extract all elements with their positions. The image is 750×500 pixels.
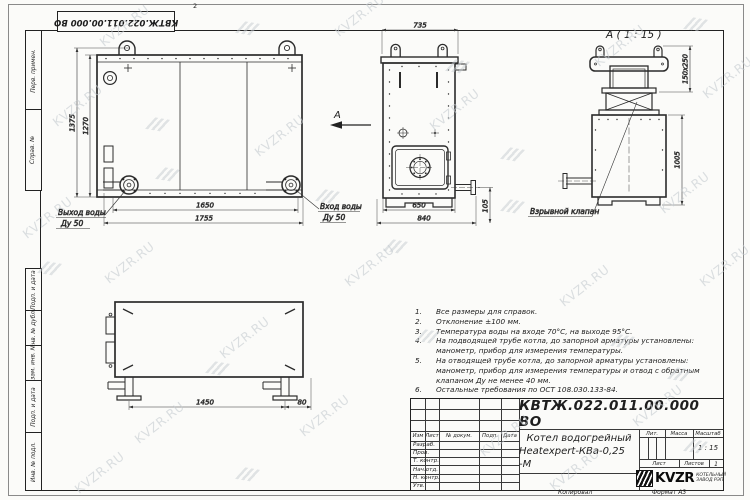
dim-105: 105	[482, 199, 490, 213]
lifting-lug	[438, 44, 447, 57]
detail-a-title: А ( 1 : 15 )	[605, 29, 662, 41]
lifting-lug	[596, 46, 604, 57]
side-view	[97, 41, 302, 197]
title-block: Изм Лист № докум. Подп. Дата Разраб. Про…	[410, 398, 724, 491]
arrow-a-label: А	[333, 110, 341, 121]
detail-a-view: А ( 1 : 15 )	[558, 29, 668, 205]
tb-header-podp: Подп.	[479, 433, 501, 439]
tb-header-data: Дата	[501, 433, 519, 439]
bottom-view	[106, 302, 303, 400]
tb-row-nkontr: Н. контр.	[413, 475, 440, 481]
dim-650: 650	[412, 202, 426, 210]
top-pipe-stub	[455, 64, 466, 70]
note-line: манометр, прибор для измерения температу…	[436, 366, 720, 376]
dim-1450: 1450	[196, 399, 214, 407]
base-skid	[598, 197, 660, 205]
dim-1005: 1005	[674, 151, 682, 168]
note-line: Все размеры для справок.	[436, 307, 720, 317]
inlet-label-line2: Ду 50	[322, 213, 345, 222]
tb-row-utv: Утв.	[413, 483, 425, 489]
dim-1270: 1270	[82, 117, 90, 135]
company-logo: KVZR КОТЕЛЬНЫЙ ЗАВОД РЭП	[640, 467, 722, 489]
tb-scale-label: Масштаб	[693, 431, 723, 437]
side-bracket	[104, 146, 113, 162]
dim-80: 80	[298, 399, 307, 407]
corner-marks	[124, 64, 296, 72]
lifting-lug	[654, 46, 662, 57]
tb-sheets-label: Листов	[679, 461, 709, 467]
note-line: манометр, прибор для измерения температу…	[436, 346, 720, 356]
front-view	[381, 44, 480, 207]
sight-glass	[397, 127, 439, 139]
dim-1375: 1375	[69, 114, 77, 132]
dim-1755: 1755	[195, 215, 213, 223]
rivet-dots	[389, 66, 449, 195]
left-leg-pipe	[108, 377, 141, 400]
company-name: КОТЕЛЬНЫЙ ЗАВОД РЭП	[696, 473, 726, 483]
corner-ticks	[123, 309, 295, 370]
side-bracket	[106, 317, 115, 334]
side-bracket	[106, 342, 115, 363]
footer-format: Формат А3	[652, 489, 686, 496]
side-bracket	[104, 168, 113, 188]
dim-840: 840	[417, 215, 431, 223]
bottom-view-dimensions: 1450 80	[129, 378, 311, 410]
front-view-dimensions: 735 650 840 105	[377, 22, 493, 227]
note-line: Остальные требования по ОСТ 108.030.133-…	[436, 385, 720, 395]
tb-sheet-label: Лист	[639, 461, 679, 467]
kvzr-logo-icon	[636, 470, 653, 487]
tb-row-razrab: Разраб.	[413, 442, 435, 448]
note-line: Отклонение ±100 мм.	[436, 317, 720, 327]
rivet-dots	[105, 58, 288, 194]
left-pipe	[558, 174, 597, 189]
kvzr-logo-word: KVZR	[655, 470, 694, 486]
lifting-lug	[279, 41, 295, 55]
tb-lit-label: Лит.	[639, 431, 665, 437]
view-direction-arrow: А	[330, 110, 371, 129]
tb-product-name: Котел водогрейный Heatexpert-КВа-0,25 -М	[519, 431, 639, 471]
hinge-boss	[104, 72, 117, 85]
product-name-line1: Котел водогрейный	[527, 432, 632, 445]
note-line: Температура воды на входе 70°С, на выход…	[436, 327, 720, 337]
tb-mass-label: Масса	[665, 431, 693, 437]
note-line: На подводящей трубе котла, до запорной а…	[436, 336, 720, 346]
dim-735: 735	[413, 22, 427, 30]
dim-150x250: 150x250	[682, 54, 690, 84]
explosion-valve	[599, 66, 659, 115]
product-name-line2: Heatexpert-КВа-0,25 -М	[519, 445, 639, 471]
technical-notes: 1.Все размеры для справок. 2.Отклонение …	[415, 307, 720, 395]
note-line: клапаном Ду не менее 40 мм.	[436, 376, 720, 386]
tb-scale-value: 1 : 15	[693, 439, 723, 457]
outlet-flange	[120, 176, 138, 194]
tb-row-tkontr: Т. контр.	[413, 458, 439, 464]
tb-doc-number: КВТЖ.022.011.00.000 ВО	[519, 401, 723, 427]
footer-copied-by: Копировал	[558, 489, 592, 496]
inlet-label-line1: Вход воды	[320, 202, 362, 211]
lifting-lug	[391, 44, 400, 57]
outlet-label-line1: Выход воды	[58, 208, 106, 217]
tb-header-docnum: № докум.	[439, 433, 479, 439]
drawing-sheet: 2 КВТЖ.022.011.00.000 ВО Перв. примен. С…	[0, 0, 750, 500]
tb-row-prov: Пров.	[413, 450, 429, 456]
side-view-dimensions: 1375 1270 1650 1755	[69, 48, 304, 226]
explosion-valve-label: Взрывной клапан	[530, 207, 599, 216]
tb-row-nachotd: Нач.отд.	[413, 467, 438, 473]
burner-flange	[406, 154, 434, 181]
tb-header-list: Лист	[425, 433, 439, 439]
dim-1650: 1650	[196, 202, 214, 210]
right-leg-pipe	[263, 377, 297, 400]
tb-header-izm: Изм	[411, 433, 425, 439]
note-line: На отводящей трубе котла, до запорной ар…	[436, 356, 720, 366]
outlet-label-line2: Ду 50	[60, 219, 83, 228]
